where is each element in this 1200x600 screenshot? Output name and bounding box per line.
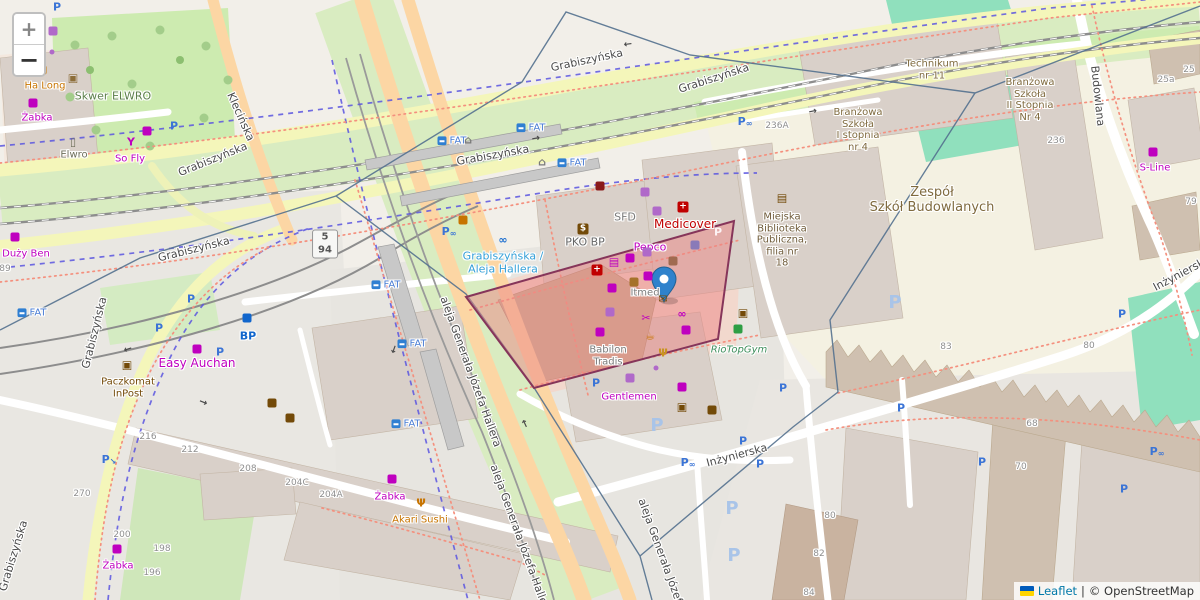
zoom-in-button[interactable]: + xyxy=(14,14,44,45)
route-shield-5-94: 5 94 xyxy=(312,230,338,259)
route-number: 5 xyxy=(318,232,332,245)
building-80-84 xyxy=(772,504,858,600)
osm-credit: © OpenStreetMap xyxy=(1089,584,1194,598)
leaflet-link[interactable]: Leaflet xyxy=(1038,584,1077,598)
ukraine-flag-icon xyxy=(1020,586,1034,596)
leaflet-map[interactable]: GrabiszyńskaGrabiszyńskaGrabiszyńskaGrab… xyxy=(0,0,1200,600)
map-tiles[interactable] xyxy=(0,0,1200,600)
attribution-bar: Leaflet | © OpenStreetMap xyxy=(1014,582,1200,600)
route-number: 94 xyxy=(318,244,332,257)
attribution-separator: | xyxy=(1081,584,1085,598)
marker-pin-dot xyxy=(660,275,669,284)
zoom-out-button[interactable]: − xyxy=(14,45,44,75)
zoom-control: + − xyxy=(12,12,46,77)
